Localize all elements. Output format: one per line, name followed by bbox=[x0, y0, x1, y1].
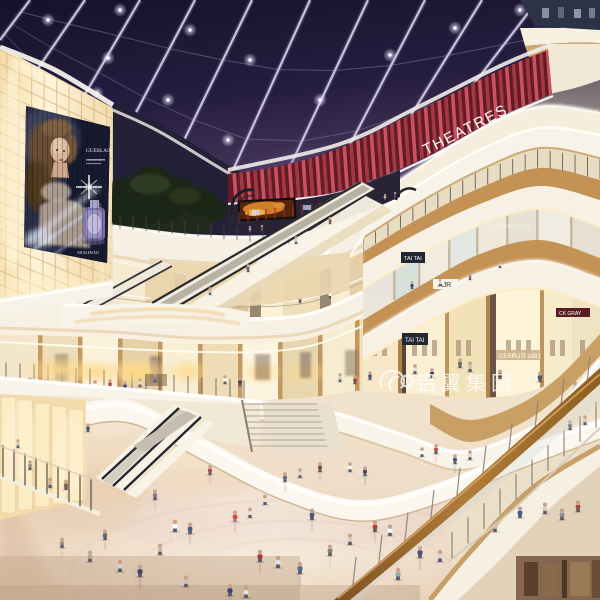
svg-text:TAI TAI: TAI TAI bbox=[404, 256, 422, 262]
svg-text:CK GRAY: CK GRAY bbox=[559, 311, 582, 317]
svg-text:铝翼集团: 铝翼集团 bbox=[416, 372, 516, 395]
svg-text:CERRUTI 1881: CERRUTI 1881 bbox=[499, 354, 541, 360]
svg-text:GUERLAIN: GUERLAIN bbox=[86, 148, 113, 154]
svg-text:SHALIMAR: SHALIMAR bbox=[77, 250, 99, 255]
svg-text:CERRUTI 1881: CERRUTI 1881 bbox=[492, 224, 530, 230]
svg-text:TAI TAI: TAI TAI bbox=[405, 338, 425, 344]
